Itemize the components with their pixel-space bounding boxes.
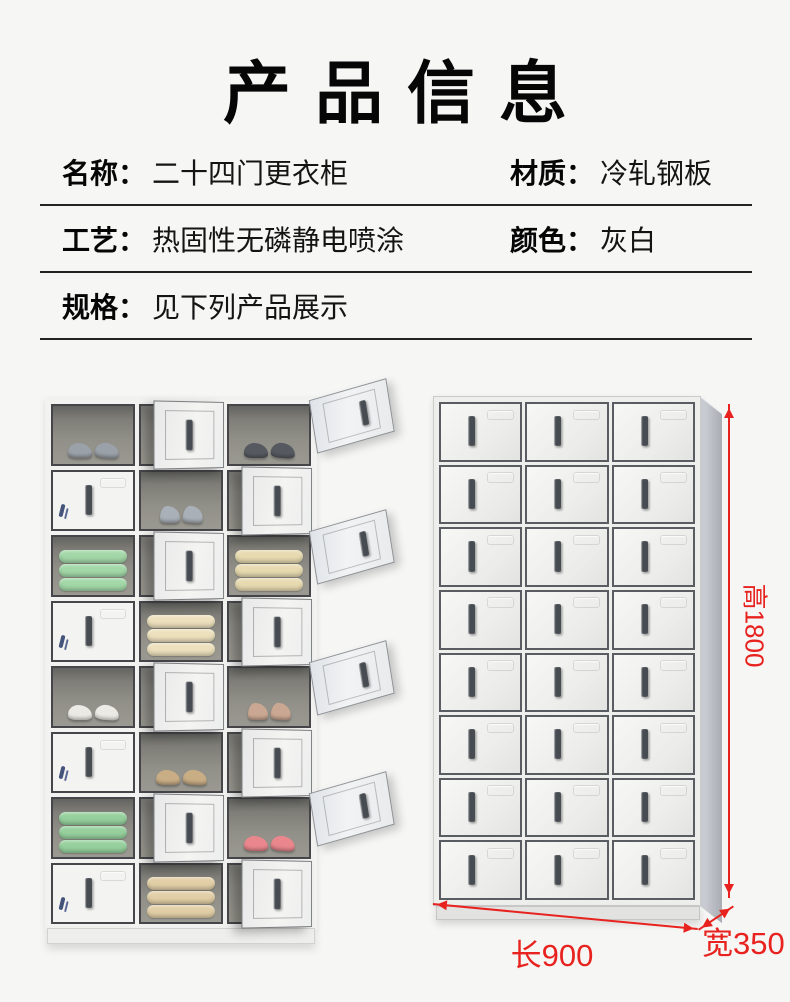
locker-door-closed: [51, 601, 135, 663]
label-holder: [487, 848, 514, 859]
label-holder: [573, 410, 600, 421]
shoe: [248, 703, 268, 720]
locker-cell-with-open-door: [139, 797, 223, 859]
height-dimension-label: 高1800: [738, 560, 775, 692]
label-holder: [573, 472, 600, 483]
door-keys: [59, 634, 66, 648]
door-lock: [538, 615, 547, 624]
door-handle: [273, 747, 280, 778]
shoe: [244, 836, 268, 851]
spec-material-value: 冷轧钢板: [600, 152, 712, 192]
locker-door-closed: [51, 863, 135, 925]
compartment-interior: [229, 406, 309, 464]
door-handle: [273, 616, 280, 647]
spec-color-value: 灰白: [600, 219, 656, 259]
shoe-pair: [229, 703, 309, 720]
open-door-panel: [241, 859, 312, 928]
door-handle: [85, 747, 92, 777]
locker-compartment-open: [227, 535, 311, 597]
locker-cell-with-open-door: [227, 470, 311, 532]
locker-door-closed: [525, 840, 608, 900]
locker-door-closed: [525, 778, 608, 838]
open-door-panel-protruding: [309, 640, 395, 716]
door-lock: [624, 553, 633, 562]
compartment-interior: [229, 799, 309, 857]
compartment-interior: [141, 865, 221, 923]
open-locker-grid: [45, 398, 317, 930]
door-handle: [641, 541, 648, 571]
length-dimension-label: 长900: [472, 930, 632, 975]
towel: [59, 564, 127, 577]
label-holder: [573, 597, 600, 608]
door-lock: [538, 427, 547, 436]
width-dimension-label: 宽350: [702, 918, 790, 963]
label-holder: [487, 660, 514, 671]
door-lock: [254, 891, 263, 900]
door-handle: [468, 479, 475, 509]
compartment-interior: [53, 799, 133, 857]
door-handle: [358, 530, 369, 557]
open-door-panel: [153, 793, 224, 862]
door-lock: [624, 615, 633, 624]
locker-door-closed: [612, 778, 695, 838]
door-handle: [554, 416, 561, 446]
spec-name-label: 名称：: [62, 152, 146, 192]
open-door-panel: [153, 662, 224, 731]
locker-door-closed: [612, 402, 695, 462]
spec-size-value: 见下列产品展示: [152, 286, 348, 326]
locker-door-closed: [612, 527, 695, 587]
door-handle: [641, 604, 648, 634]
door-handle: [85, 485, 92, 515]
locker-door-closed: [612, 465, 695, 525]
locker-compartment-open: [51, 535, 135, 597]
towel: [147, 877, 215, 890]
shoe: [160, 506, 180, 523]
label-holder: [660, 410, 687, 421]
towel-stack: [145, 614, 217, 657]
page-title: 产品信息: [0, 38, 790, 137]
label-holder: [573, 785, 600, 796]
spec-material: 材质： 冷轧钢板: [510, 152, 752, 192]
door-handle: [641, 667, 648, 697]
door-lock: [254, 629, 263, 638]
locker-door-closed: [525, 465, 608, 525]
locker-door-closed: [51, 470, 135, 532]
door-handle: [468, 667, 475, 697]
locker-door-closed: [439, 715, 522, 775]
locker-compartment-open: [139, 470, 223, 532]
door-handle: [468, 792, 475, 822]
locker-compartment-open: [51, 797, 135, 859]
door-handle: [554, 792, 561, 822]
door-lock: [451, 427, 460, 436]
spec-material-label: 材质：: [510, 152, 594, 192]
shoe: [156, 770, 180, 785]
shoe: [270, 835, 295, 852]
locker-door-closed: [439, 402, 522, 462]
compartment-interior: [53, 406, 133, 464]
spec-size: 规格： 见下列产品展示: [62, 286, 510, 326]
spec-color-label: 颜色：: [510, 219, 594, 259]
locker-cell-with-open-door: [139, 404, 223, 466]
spec-craft-value: 热固性无磷静电喷涂: [152, 219, 404, 259]
door-handle: [641, 855, 648, 885]
door-lock: [451, 678, 460, 687]
locker-side-panel: [700, 396, 722, 923]
towel: [59, 812, 127, 825]
locker-base: [47, 928, 315, 944]
shoe-pair: [141, 770, 221, 785]
label-holder: [487, 535, 514, 546]
locker-door-closed: [525, 402, 608, 462]
door-lock: [166, 563, 175, 572]
towel-stack: [57, 811, 129, 854]
closed-locker-grid: [433, 396, 701, 906]
door-lock: [451, 490, 460, 499]
shoe: [270, 442, 295, 459]
locker-door-closed: [439, 653, 522, 713]
towel-stack: [57, 549, 129, 592]
door-lock: [538, 803, 547, 812]
door-handle: [358, 661, 369, 688]
shoe: [94, 442, 119, 459]
shoe-pair: [229, 443, 309, 458]
height-dimension-line: [728, 404, 730, 898]
locker-cell-with-open-door: [139, 666, 223, 728]
shoe: [270, 702, 291, 720]
shoe-pair: [141, 506, 221, 523]
label-holder: [100, 871, 126, 881]
open-door-panel: [241, 466, 312, 535]
shoe: [68, 443, 92, 458]
door-handle: [468, 855, 475, 885]
door-lock: [538, 866, 547, 875]
door-lock: [451, 740, 460, 749]
door-handle: [185, 812, 192, 843]
shoe-pair: [53, 443, 133, 458]
towel: [147, 615, 215, 628]
door-lock: [538, 490, 547, 499]
locker-door-closed: [525, 715, 608, 775]
door-handle: [85, 878, 92, 908]
locker-compartment-open: [51, 404, 135, 466]
locker-door-closed: [51, 732, 135, 794]
locker-door-closed: [439, 840, 522, 900]
door-lock: [451, 866, 460, 875]
locker-door-closed: [612, 590, 695, 650]
spec-row-1: 名称： 二十四门更衣柜 材质： 冷轧钢板: [40, 139, 752, 206]
door-handle: [358, 399, 369, 426]
door-handle: [468, 604, 475, 634]
compartment-interior: [141, 603, 221, 661]
locker-door-closed: [439, 527, 522, 587]
open-door-panel-protruding: [309, 509, 395, 585]
label-holder: [660, 472, 687, 483]
door-handle: [185, 419, 192, 450]
locker-door-closed: [612, 715, 695, 775]
door-lock: [254, 498, 263, 507]
door-handle: [641, 416, 648, 446]
compartment-interior: [53, 537, 133, 595]
door-lock: [624, 803, 633, 812]
towel: [235, 564, 303, 577]
label-holder: [660, 660, 687, 671]
towel: [147, 643, 215, 656]
spec-row-3: 规格： 见下列产品展示: [40, 273, 752, 340]
spec-size-label: 规格：: [62, 286, 146, 326]
spec-row-2: 工艺： 热固性无磷静电喷涂 颜色： 灰白: [40, 206, 752, 273]
spec-name-value: 二十四门更衣柜: [152, 152, 348, 192]
compartment-interior: [229, 668, 309, 726]
label-holder: [573, 535, 600, 546]
door-lock: [166, 825, 175, 834]
open-door-panel-protruding: [309, 378, 395, 454]
locker-door-closed: [612, 653, 695, 713]
door-handle: [554, 729, 561, 759]
shoe: [182, 505, 203, 523]
door-handle: [358, 792, 369, 819]
compartment-interior: [141, 472, 221, 530]
locker-door-closed: [439, 465, 522, 525]
door-handle: [554, 855, 561, 885]
towel: [59, 840, 127, 853]
door-lock: [624, 866, 633, 875]
door-keys: [59, 896, 66, 910]
spec-color: 颜色： 灰白: [510, 219, 752, 259]
spec-craft: 工艺： 热固性无磷静电喷涂: [62, 219, 510, 259]
spec-name: 名称： 二十四门更衣柜: [62, 152, 510, 192]
door-handle: [641, 479, 648, 509]
door-lock: [624, 490, 633, 499]
door-lock: [166, 694, 175, 703]
locker-compartment-open: [227, 666, 311, 728]
door-lock: [538, 740, 547, 749]
label-holder: [660, 723, 687, 734]
open-door-panel: [241, 597, 312, 666]
label-holder: [660, 785, 687, 796]
door-handle: [554, 479, 561, 509]
locker-compartment-open: [51, 666, 135, 728]
door-handle: [554, 604, 561, 634]
locker-cell-with-open-door: [139, 535, 223, 597]
locker-cell-with-open-door: [227, 732, 311, 794]
closed-locker-image: [433, 396, 701, 906]
shoe: [94, 704, 119, 721]
door-keys: [59, 503, 66, 517]
door-handle: [468, 541, 475, 571]
shoe: [244, 443, 268, 458]
door-lock: [538, 678, 547, 687]
label-holder: [100, 740, 126, 750]
label-holder: [487, 472, 514, 483]
door-handle: [554, 541, 561, 571]
open-door-panel-protruding: [309, 771, 395, 847]
locker-compartment-open: [139, 732, 223, 794]
door-lock: [451, 553, 460, 562]
label-holder: [660, 597, 687, 608]
door-lock: [624, 427, 633, 436]
shoe-pair: [229, 836, 309, 851]
locker-cell-with-open-door: [227, 863, 311, 925]
door-handle: [185, 681, 192, 712]
towel: [147, 905, 215, 918]
towel: [235, 550, 303, 563]
label-holder: [573, 723, 600, 734]
product-display-area: 高1800 长900 宽350: [0, 360, 790, 1002]
label-holder: [660, 535, 687, 546]
open-locker-image: [45, 398, 317, 930]
door-handle: [468, 416, 475, 446]
locker-door-closed: [439, 778, 522, 838]
door-lock: [624, 740, 633, 749]
door-lock: [254, 760, 263, 769]
door-lock: [624, 678, 633, 687]
towel-stack: [145, 876, 217, 919]
locker-door-closed: [525, 653, 608, 713]
open-door-panel: [153, 531, 224, 600]
open-door-panel: [153, 400, 224, 469]
door-handle: [273, 485, 280, 516]
shoe: [68, 705, 92, 720]
locker-door-closed: [525, 590, 608, 650]
locker-cell-with-open-door: [227, 601, 311, 663]
compartment-interior: [141, 734, 221, 792]
label-holder: [660, 848, 687, 859]
shoe-pair: [53, 705, 133, 720]
towel: [147, 891, 215, 904]
label-holder: [573, 848, 600, 859]
door-handle: [185, 550, 192, 581]
door-handle: [554, 667, 561, 697]
door-handle: [85, 616, 92, 646]
locker-door-closed: [439, 590, 522, 650]
label-holder: [573, 660, 600, 671]
locker-compartment-open: [227, 797, 311, 859]
label-holder: [487, 785, 514, 796]
locker-compartment-open: [227, 404, 311, 466]
open-door-panel: [241, 728, 312, 797]
compartment-interior: [53, 668, 133, 726]
specs-table: 名称： 二十四门更衣柜 材质： 冷轧钢板 工艺： 热固性无磷静电喷涂 颜色： 灰…: [40, 139, 752, 340]
door-keys: [59, 765, 66, 779]
locker-compartment-open: [139, 863, 223, 925]
door-handle: [468, 729, 475, 759]
towel: [235, 578, 303, 591]
towel: [147, 629, 215, 642]
door-handle: [641, 729, 648, 759]
door-lock: [166, 432, 175, 441]
spec-craft-label: 工艺：: [62, 219, 146, 259]
towel: [59, 578, 127, 591]
door-handle: [641, 792, 648, 822]
product-info-page: 产品信息 名称： 二十四门更衣柜 材质： 冷轧钢板 工艺： 热固性无磷静电喷涂 …: [0, 0, 790, 1002]
towel-stack: [233, 549, 305, 592]
door-handle: [273, 878, 280, 909]
towel: [59, 826, 127, 839]
label-holder: [487, 723, 514, 734]
door-lock: [538, 553, 547, 562]
locker-door-closed: [525, 527, 608, 587]
door-lock: [451, 615, 460, 624]
label-holder: [487, 410, 514, 421]
label-holder: [100, 609, 126, 619]
locker-compartment-open: [139, 601, 223, 663]
door-lock: [451, 803, 460, 812]
compartment-interior: [229, 537, 309, 595]
towel: [59, 550, 127, 563]
shoe: [182, 769, 207, 786]
locker-door-closed: [612, 840, 695, 900]
label-holder: [100, 478, 126, 488]
label-holder: [487, 597, 514, 608]
